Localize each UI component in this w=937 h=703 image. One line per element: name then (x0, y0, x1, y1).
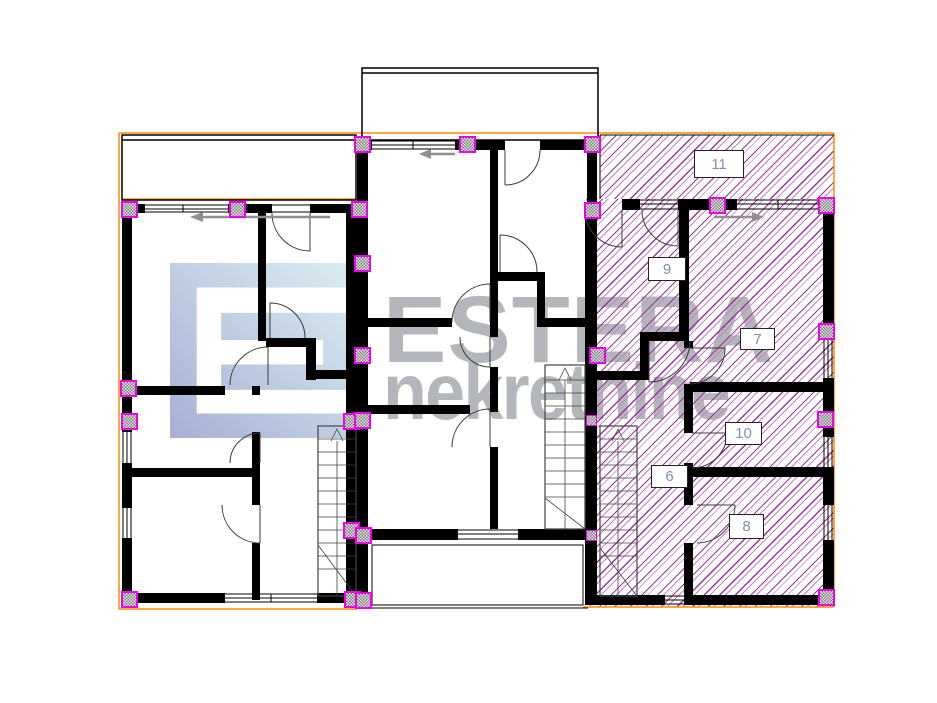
stairs-right-unit (600, 426, 637, 596)
pillar-marker (354, 136, 371, 153)
pillar-marker (818, 197, 835, 214)
pillar-marker (354, 412, 371, 429)
pillar-marker (584, 136, 601, 153)
pillar-marker (817, 411, 834, 428)
pillar-marker (354, 347, 371, 364)
pillar-marker (818, 323, 835, 340)
pillar-marker (584, 202, 601, 219)
room-number: 6 (665, 468, 673, 485)
pillar-marker (120, 380, 137, 397)
pillar-marker (121, 201, 138, 218)
room-number: 11 (711, 156, 727, 173)
pillar-marker (121, 591, 138, 608)
pillar-marker (818, 589, 835, 606)
pillar-marker (355, 527, 372, 544)
pillar-marker (121, 413, 138, 430)
room-number: 8 (742, 518, 750, 535)
room-label-8: 8 (729, 514, 764, 539)
room-label-10: 10 (725, 422, 762, 445)
pillar-marker (709, 197, 726, 214)
stairs-middle-unit (545, 365, 585, 529)
pillar-marker-small (586, 530, 597, 541)
pillar-marker (459, 136, 476, 153)
pillar-marker (229, 201, 246, 218)
room-number: 10 (735, 425, 752, 442)
arrow-right-unit-icon (714, 212, 764, 222)
room-label-11: 11 (694, 150, 744, 178)
arrow-middle-unit-icon (419, 149, 455, 159)
pillar-marker (354, 255, 371, 272)
pillar-marker (351, 201, 368, 218)
room-label-9: 9 (648, 257, 686, 281)
pillar-marker-small (586, 415, 597, 426)
pillar-marker (589, 347, 606, 364)
pillar-marker (355, 592, 372, 609)
floor-plan-drawing (0, 0, 937, 703)
room-number: 7 (753, 331, 761, 348)
floor-plan-page: ESTERA nekretnine (0, 0, 937, 703)
room-label-6: 6 (651, 465, 688, 488)
room-label-7: 7 (740, 328, 775, 350)
room-number: 9 (663, 261, 671, 278)
